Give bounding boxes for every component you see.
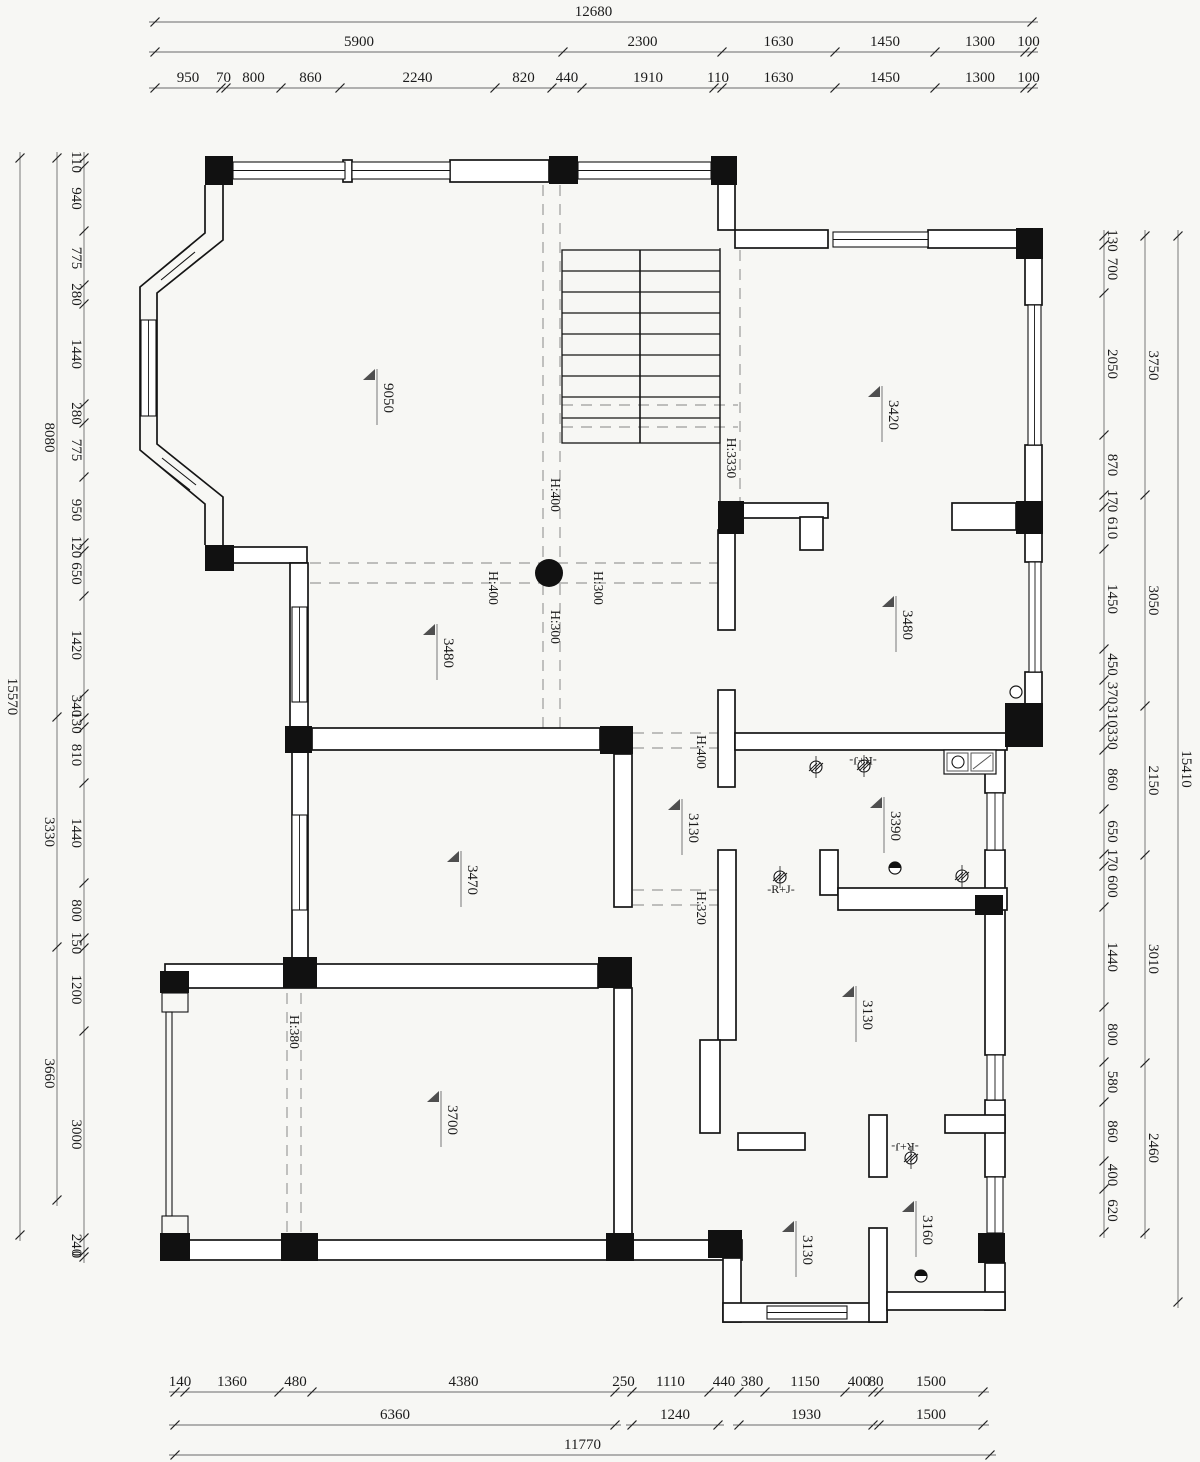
- wall: [869, 1115, 887, 1177]
- wall: [952, 503, 1016, 530]
- dimension-chain: 12680: [149, 4, 1038, 27]
- dim-text: 820: [512, 70, 535, 86]
- room-area-label: 3470: [447, 851, 480, 907]
- floor-plan-svg: 9050342034803480347033903130313037003130…: [0, 0, 1200, 1462]
- room-area-label: 3160: [902, 1201, 935, 1257]
- wall: [1025, 258, 1042, 305]
- beam-dashed-layer: [287, 185, 740, 1233]
- wall: [614, 988, 632, 1240]
- dim-text: 15410: [1178, 750, 1194, 788]
- dim-text: 950: [68, 499, 84, 522]
- label-triangle: [902, 1201, 914, 1212]
- wall: [735, 733, 1007, 750]
- dim-text: 610: [1104, 517, 1120, 540]
- beam-height-label: H:400: [548, 478, 563, 512]
- structural-column: [549, 156, 578, 184]
- dimension-chain: 11770: [169, 1437, 996, 1460]
- beam-height-label: H:380: [287, 1015, 302, 1049]
- room-label-text: 3470: [464, 865, 480, 895]
- structural-column: [285, 726, 312, 753]
- dim-text: 1450: [870, 70, 900, 86]
- dim-text: 870: [1104, 454, 1120, 477]
- dim-text: 280: [68, 402, 84, 425]
- dim-text: 150: [68, 932, 84, 955]
- dim-text: 400: [848, 1374, 871, 1390]
- dim-text: 1110: [656, 1374, 685, 1390]
- dim-text: 650: [1104, 820, 1120, 843]
- dimension-chain: 1930: [733, 1407, 879, 1430]
- dim-text: 1440: [68, 339, 84, 369]
- pipe-circle: [1010, 686, 1022, 698]
- dim-text: 1360: [217, 1374, 247, 1390]
- dimension-chain: 15570: [4, 152, 25, 1241]
- dim-text: 11770: [564, 1437, 601, 1453]
- dim-text: 1910: [633, 70, 663, 86]
- dim-text: 3660: [41, 1059, 57, 1089]
- dim-text: 480: [284, 1374, 307, 1390]
- dim-text: 450: [1104, 653, 1120, 676]
- utility-label: -R+J-: [891, 1140, 918, 1154]
- wall: [718, 850, 736, 1040]
- dim-text: 110: [68, 151, 84, 173]
- dim-text: 2240: [403, 70, 433, 86]
- dim-text: 120: [68, 536, 84, 559]
- dim-text: 130: [1104, 229, 1120, 252]
- dim-text: 100: [1017, 70, 1040, 86]
- structural-column: [1005, 703, 1043, 747]
- dim-text: 5900: [344, 34, 374, 50]
- utility-label: -R+J-: [767, 882, 794, 896]
- room-label-text: 3480: [899, 610, 915, 640]
- room-label-text: 9050: [380, 383, 396, 413]
- dim-text: 2150: [1145, 766, 1161, 796]
- dim-text: 380: [741, 1374, 764, 1390]
- stair-boundary: [562, 250, 720, 443]
- label-triangle: [870, 797, 882, 808]
- dim-text: 0: [68, 1251, 84, 1259]
- wall: [165, 1240, 742, 1260]
- dim-text: 1300: [965, 70, 995, 86]
- dim-text: 860: [1104, 1120, 1120, 1143]
- wall: [743, 503, 828, 518]
- wall: [718, 183, 735, 230]
- beam-height-label: H:300: [591, 571, 606, 605]
- wall: [233, 547, 307, 563]
- dim-text: 860: [1104, 768, 1120, 791]
- structural-column: [598, 957, 632, 988]
- dim-text: 400: [1104, 1164, 1120, 1187]
- dim-text: 1150: [790, 1374, 819, 1390]
- dim-text: 1630: [764, 34, 794, 50]
- room-label-text: 3420: [885, 400, 901, 430]
- label-triangle: [782, 1221, 794, 1232]
- dim-text: 800: [1104, 1023, 1120, 1046]
- dimension-chain: 1240: [626, 1407, 724, 1430]
- dim-text: 280: [68, 283, 84, 306]
- wall: [1025, 533, 1042, 562]
- beam-height-label: H:320: [694, 891, 709, 925]
- structural-column: [1016, 228, 1043, 259]
- structural-column: [205, 156, 233, 185]
- dim-text: 1440: [1104, 942, 1120, 972]
- dim-text: 940: [68, 187, 84, 210]
- dim-text: 1240: [660, 1407, 690, 1423]
- dim-text: 12680: [575, 4, 613, 20]
- room-area-label: 3480: [423, 624, 456, 680]
- room-label-text: 3390: [887, 811, 903, 841]
- room-label-text: 3700: [444, 1105, 460, 1135]
- dim-text: 15570: [4, 678, 20, 716]
- dim-text: 1500: [916, 1407, 946, 1423]
- dimension-chain: 6360: [169, 1407, 621, 1430]
- railing-outline: [162, 1216, 188, 1234]
- wall: [700, 1040, 720, 1133]
- dim-text: 4380: [449, 1374, 479, 1390]
- room-labels: 9050342034803480347033903130313037003130…: [363, 369, 935, 1277]
- dim-text: 700: [1104, 258, 1120, 281]
- label-triangle: [423, 624, 435, 635]
- dim-text: 1420: [68, 630, 84, 660]
- dim-text: 950: [177, 70, 200, 86]
- label-triangle: [427, 1091, 439, 1102]
- wall: [869, 1228, 887, 1322]
- dim-text: 1200: [68, 975, 84, 1005]
- wall: [312, 728, 600, 750]
- beam-height-label: H:3330: [724, 438, 739, 479]
- wall: [945, 1115, 1005, 1133]
- dim-text: 800: [242, 70, 265, 86]
- beam-height-label: H:300: [548, 610, 563, 644]
- dim-text: 810: [68, 744, 84, 767]
- dim-text: 1500: [916, 1374, 946, 1390]
- room-label-text: 3130: [799, 1235, 815, 1265]
- dim-text: 310: [1104, 705, 1120, 728]
- wall: [800, 517, 823, 550]
- room-label-text: 3480: [440, 638, 456, 668]
- dim-text: 370: [1104, 682, 1120, 705]
- room-area-label: 3390: [870, 797, 903, 853]
- dim-text: 330: [1104, 727, 1120, 750]
- dim-text: 110: [707, 70, 729, 86]
- dimension-chain: 1109407752801440280775950120650142034013…: [68, 151, 89, 1263]
- dim-text: 250: [612, 1374, 635, 1390]
- dim-text: 860: [299, 70, 322, 86]
- dimension-chain: 808033303660: [41, 152, 62, 1206]
- staircase: [562, 250, 720, 443]
- dim-text: 1300: [965, 34, 995, 50]
- dimension-chain: 1401360480438025011104403801150400801500: [169, 1374, 989, 1397]
- dim-text: 2050: [1104, 349, 1120, 379]
- wall: [1025, 672, 1042, 705]
- structural-column: [281, 1233, 318, 1261]
- structural-column: [283, 957, 317, 988]
- structural-column: [600, 726, 633, 754]
- structural-column: [205, 545, 234, 571]
- room-label-text: 3160: [919, 1215, 935, 1245]
- dim-text: 1450: [870, 34, 900, 50]
- wall: [1025, 445, 1042, 503]
- dim-text: 6360: [380, 1407, 410, 1423]
- wall: [718, 530, 735, 630]
- dim-text: 440: [713, 1374, 736, 1390]
- label-triangle: [363, 369, 375, 380]
- structural-column: [1016, 501, 1043, 534]
- dim-text: 1630: [764, 70, 794, 86]
- gas-water-point: [955, 865, 969, 887]
- wall: [928, 230, 1018, 248]
- structural-column: [708, 1230, 742, 1258]
- dim-text: 80: [869, 1374, 884, 1390]
- label-triangle: [842, 986, 854, 997]
- room-area-label: 3130: [842, 986, 875, 1042]
- dimension-chain: 59002300163014501300100: [149, 34, 1040, 57]
- wall: [738, 1133, 805, 1150]
- wall: [735, 230, 828, 248]
- dimension-chain: 37503050215030102460: [1141, 230, 1162, 1239]
- room-area-label: 9050: [363, 369, 396, 425]
- wall: [887, 1292, 1005, 1310]
- room-area-label: 3480: [882, 596, 915, 652]
- dim-text: 100: [1017, 34, 1040, 50]
- dim-text: 3750: [1145, 351, 1161, 381]
- dim-text: 3000: [68, 1120, 84, 1150]
- dim-text: 1450: [1104, 584, 1120, 614]
- round-column: [535, 559, 563, 587]
- utility-label: -R+J-: [849, 754, 876, 768]
- dim-text: 600: [1104, 875, 1120, 898]
- dim-text: 1440: [68, 818, 84, 848]
- room-label-text: 3130: [685, 813, 701, 843]
- dim-text: 620: [1104, 1199, 1120, 1222]
- dim-text: 2300: [628, 34, 658, 50]
- dimension-chain: 15410: [1174, 230, 1195, 1308]
- wall: [450, 160, 549, 182]
- wall: [718, 690, 735, 787]
- dim-text: 800: [68, 899, 84, 922]
- dimension-chain: 1307002050870170610145045037031033086065…: [1100, 229, 1121, 1238]
- room-label-text: 3130: [859, 1000, 875, 1030]
- floor-drain-half: [889, 862, 901, 868]
- dim-text: 775: [68, 247, 84, 270]
- dim-text: 8080: [41, 423, 57, 453]
- dim-text: 3330: [41, 817, 57, 847]
- structural-column: [975, 895, 1003, 915]
- railing-outline: [166, 1012, 172, 1216]
- beam-height-label: H:400: [486, 571, 501, 605]
- label-triangle: [868, 386, 880, 397]
- structural-column: [160, 971, 189, 993]
- floor-plan-canvas: 9050342034803480347033903130313037003130…: [0, 0, 1200, 1462]
- label-triangle: [447, 851, 459, 862]
- room-area-label: 3700: [427, 1091, 460, 1147]
- structural-column: [160, 1233, 190, 1261]
- room-area-label: 3130: [782, 1221, 815, 1277]
- floor-drain-half: [915, 1270, 927, 1276]
- dim-text: 3010: [1145, 944, 1161, 974]
- label-triangle: [882, 596, 894, 607]
- dim-text: 3050: [1145, 586, 1161, 616]
- dim-text: 70: [216, 70, 231, 86]
- dim-text: 130: [68, 711, 84, 734]
- room-area-label: 3130: [668, 799, 701, 855]
- dim-text: 140: [169, 1374, 192, 1390]
- dim-text: 170: [1104, 490, 1120, 513]
- dim-text: 440: [556, 70, 579, 86]
- wall: [820, 850, 838, 895]
- structural-column: [718, 501, 744, 534]
- wall: [614, 754, 632, 907]
- dimension-chain: 9507080086022408204401910110163014501300…: [149, 70, 1040, 93]
- fixtures-layer: [535, 559, 1022, 1282]
- dim-text: 580: [1104, 1071, 1120, 1094]
- dim-text: 650: [68, 562, 84, 585]
- wall: [165, 964, 598, 988]
- structural-column: [711, 156, 737, 185]
- dim-text: 2460: [1145, 1133, 1161, 1163]
- dimension-chain: 1500: [873, 1407, 989, 1430]
- structural-column: [606, 1233, 634, 1261]
- gas-water-point: [809, 756, 823, 778]
- railing-outline: [162, 993, 188, 1012]
- dim-text: 1930: [791, 1407, 821, 1423]
- wall: [985, 1100, 1005, 1177]
- beam-height-label: H:400: [694, 735, 709, 769]
- structural-column: [978, 1233, 1005, 1263]
- dim-text: 170: [1104, 849, 1120, 872]
- dim-text: 775: [68, 439, 84, 462]
- label-triangle: [668, 799, 680, 810]
- wall: [985, 850, 1005, 1055]
- room-area-label: 3420: [868, 386, 901, 442]
